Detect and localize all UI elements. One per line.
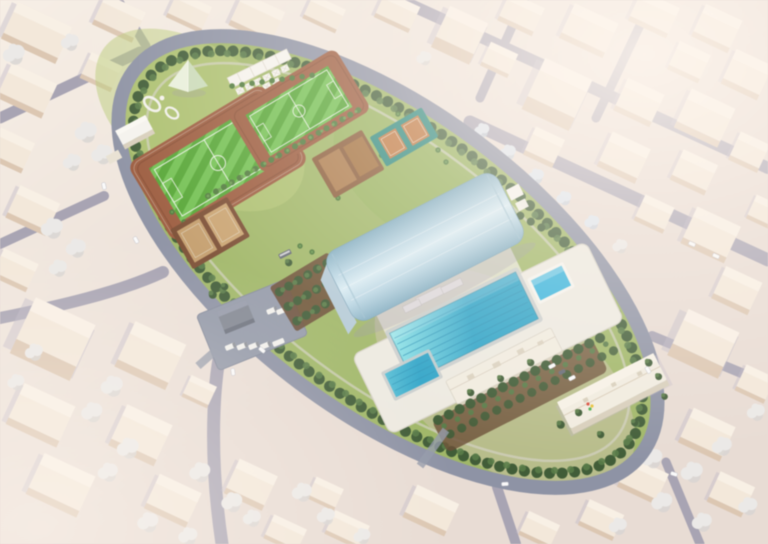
architectural-render	[0, 0, 768, 544]
light-wash-overlay-2	[0, 0, 768, 544]
render-canvas	[0, 0, 768, 544]
